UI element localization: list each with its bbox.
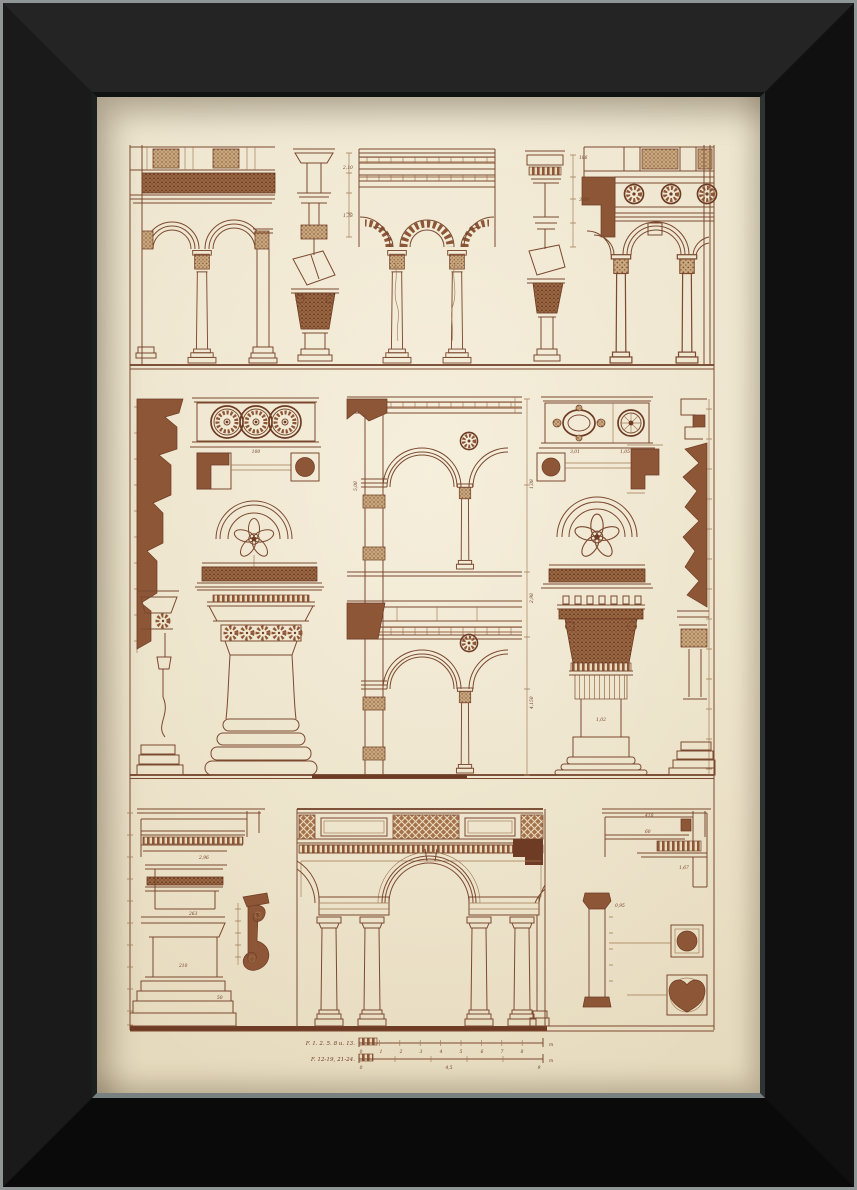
svg-text:0,95: 0,95 <box>615 904 625 909</box>
plate-paper: F. 1. 2. 5. 8 u. 13. 0 1 2 3 4 5 6 7 8 m… <box>97 97 760 1093</box>
top-cornice-profile-and-capital-detail <box>525 151 576 361</box>
svg-text:2,10: 2,10 <box>342 166 353 171</box>
svg-text:3,01: 3,01 <box>570 450 580 455</box>
scale2-unit: m <box>549 1059 553 1064</box>
svg-text:0: 0 <box>360 1066 363 1071</box>
svg-text:1,08: 1,08 <box>530 479 535 489</box>
svg-text:5,08: 5,08 <box>354 481 359 491</box>
svg-text:1,02: 1,02 <box>596 718 606 723</box>
bottom-arcade-with-balustrade <box>297 809 549 1028</box>
caption-line1: F. 1. 2. 5. 8 u. 13. <box>305 1041 356 1047</box>
top-left-arcade-elevation <box>130 145 277 365</box>
plan-quatrefoil-detail <box>627 975 707 1015</box>
svg-text:3: 3 <box>420 1050 423 1055</box>
two-story-arcade-section <box>347 397 530 775</box>
svg-text:9: 9 <box>538 1066 541 1071</box>
svg-text:1: 1 <box>380 1050 383 1055</box>
console-scroll-bracket <box>235 893 269 970</box>
svg-text:1,38: 1,38 <box>343 214 353 219</box>
cartouche-frieze-panel-right <box>539 397 655 448</box>
top-center-banded-arcade <box>359 149 495 363</box>
middle-left-section-profile <box>134 399 183 653</box>
leaf-cornice-strip-right <box>541 565 653 588</box>
svg-text:5: 5 <box>460 1050 463 1055</box>
tudor-rose-medallion-right <box>557 497 637 559</box>
svg-text:60: 60 <box>645 830 651 835</box>
bottom-right-pilaster-profile <box>583 893 613 1007</box>
bottom-right-cornice-detail <box>602 809 711 887</box>
svg-text:3,00: 3,00 <box>579 198 589 203</box>
leaf-cornice-strip-left <box>195 563 324 590</box>
plan-detail-right <box>537 445 663 493</box>
top-right-arcade-with-medallions <box>582 145 717 365</box>
svg-text:4,150: 4,150 <box>530 696 535 710</box>
svg-text:1,67: 1,67 <box>679 866 689 871</box>
framed-print-photo: F. 1. 2. 5. 8 u. 13. 0 1 2 3 4 5 6 7 8 m… <box>0 0 857 1190</box>
svg-text:210: 210 <box>178 964 188 969</box>
svg-text:1,05: 1,05 <box>620 450 630 455</box>
svg-text:4,5: 4,5 <box>445 1066 453 1071</box>
plan-square-with-circle <box>609 925 703 957</box>
bottom-left-entablature-profiles <box>127 809 265 1026</box>
svg-text:7: 7 <box>501 1050 504 1055</box>
svg-text:263: 263 <box>188 912 198 917</box>
scale1-unit: m <box>549 1043 553 1048</box>
svg-text:410: 410 <box>644 814 654 819</box>
corinthian-capital-elevation <box>555 596 647 775</box>
svg-text:6: 6 <box>481 1050 484 1055</box>
svg-text:2,98: 2,98 <box>530 593 535 604</box>
svg-text:100: 100 <box>252 450 261 455</box>
svg-text:2: 2 <box>399 1050 403 1055</box>
top-pilaster-profile-and-capital-detail <box>291 149 352 361</box>
svg-text:8: 8 <box>521 1050 524 1055</box>
scale-bars: F. 1. 2. 5. 8 u. 13. 0 1 2 3 4 5 6 7 8 m… <box>305 1038 553 1071</box>
caption-line2: F. 12-19, 21-24. <box>310 1057 355 1063</box>
svg-text:186: 186 <box>579 156 588 161</box>
svg-text:50: 50 <box>217 996 223 1001</box>
middle-right-moulding-profile <box>669 399 715 775</box>
engraving-plate: F. 1. 2. 5. 8 u. 13. 0 1 2 3 4 5 6 7 8 m… <box>97 97 760 1093</box>
plan-detail-left <box>197 453 319 489</box>
pedestal-elevation-left <box>205 595 317 775</box>
svg-text:2,96: 2,96 <box>198 856 209 861</box>
rosette-frieze-panel <box>190 398 321 447</box>
svg-text:4: 4 <box>439 1050 443 1055</box>
tudor-rose-medallion-left <box>216 501 292 571</box>
